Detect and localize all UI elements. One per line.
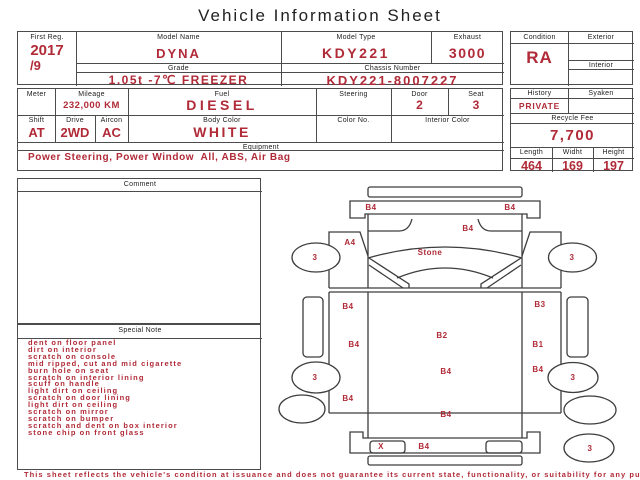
left-side-rail xyxy=(303,297,323,357)
damage-mark: B4 xyxy=(462,224,473,233)
front-roof-bar xyxy=(368,187,522,197)
damage-mark: B4 xyxy=(504,203,515,212)
damage-mark: 3 xyxy=(570,253,575,262)
damage-marks: B4 B4 B4 A4 Stone 3 3 B4 B3 B2 B4 B1 B4 … xyxy=(313,203,593,453)
right-rear-wheel xyxy=(564,396,616,424)
right-side-rail xyxy=(567,297,588,357)
damage-mark: B4 xyxy=(348,340,359,349)
damage-mark: 3 xyxy=(313,253,318,262)
damage-mark: B3 xyxy=(534,300,545,309)
damage-mark: B1 xyxy=(532,340,543,349)
truck-outline xyxy=(279,187,616,465)
damage-diagram: B4 B4 B4 A4 Stone 3 3 B4 B3 B2 B4 B1 B4 … xyxy=(0,0,640,480)
cab-sides xyxy=(368,214,522,288)
damage-mark: B2 xyxy=(436,331,447,340)
front-fenders xyxy=(329,232,561,288)
damage-mark: 3 xyxy=(588,444,593,453)
vehicle-information-sheet: Vehicle Information Sheet First Reg. 201… xyxy=(0,0,640,480)
windshield xyxy=(368,247,522,278)
cab-roofline xyxy=(368,219,522,231)
damage-mark: B4 xyxy=(342,394,353,403)
cab-box-divider xyxy=(329,288,561,292)
a-pillars xyxy=(369,258,521,288)
rear-bar xyxy=(368,456,522,465)
damage-mark: B4 xyxy=(532,365,543,374)
damage-mark: 3 xyxy=(571,373,576,382)
damage-mark: B4 xyxy=(342,302,353,311)
rear-step-left xyxy=(370,441,405,453)
disclaimer-text: This sheet reflects the vehicle's condit… xyxy=(24,470,640,479)
rear-step-right xyxy=(486,441,522,453)
damage-mark: B4 xyxy=(418,442,429,451)
damage-mark: B4 xyxy=(440,410,451,419)
damage-mark: Stone xyxy=(418,248,443,257)
left-rear-wheel xyxy=(279,395,325,423)
damage-mark: 3 xyxy=(313,373,318,382)
damage-mark: X xyxy=(378,442,384,451)
damage-mark: B4 xyxy=(440,367,451,376)
damage-mark: B4 xyxy=(365,203,376,212)
damage-mark: A4 xyxy=(344,238,355,247)
